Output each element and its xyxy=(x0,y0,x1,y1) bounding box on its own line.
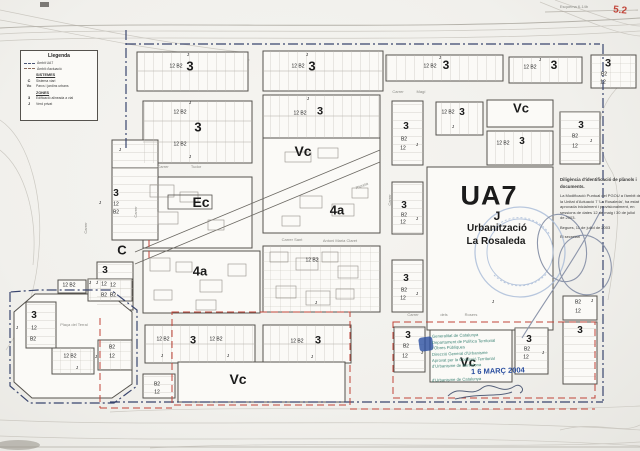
legend-section-heading: ZONES xyxy=(36,91,94,95)
legend-section-heading: SISTEMES xyxy=(36,73,94,77)
legend-item-label: Àmbit UA7 xyxy=(37,61,53,65)
legend-item-label: Verd privat xyxy=(36,102,52,106)
legend-item-code: J xyxy=(24,102,34,106)
legend-item-code: Vc xyxy=(24,84,34,88)
legend-item-label: Sistema viari xyxy=(36,79,55,83)
legend-box: Llegenda Àmbit UA7 Àmbit d'actuació SIST… xyxy=(20,50,98,121)
ambit-ua7-line-symbol xyxy=(24,63,35,64)
secretary-signature xyxy=(448,385,523,399)
legend-item-code: 3 xyxy=(24,96,34,100)
plan-sheet: Llegenda Àmbit UA7 Àmbit d'actuació SIST… xyxy=(0,0,640,451)
legend-item-label: Àmbit d'actuació xyxy=(37,67,62,71)
ink-blotch xyxy=(418,336,434,352)
legend-item-label: Parcs i jardins urbans xyxy=(36,84,69,88)
legend-title: Llegenda xyxy=(24,53,94,59)
ambit-actuacio-line-symbol xyxy=(24,68,35,69)
legend-item-code: C xyxy=(24,79,34,83)
legend-item-label: Edificació alineada a vial xyxy=(36,96,73,100)
